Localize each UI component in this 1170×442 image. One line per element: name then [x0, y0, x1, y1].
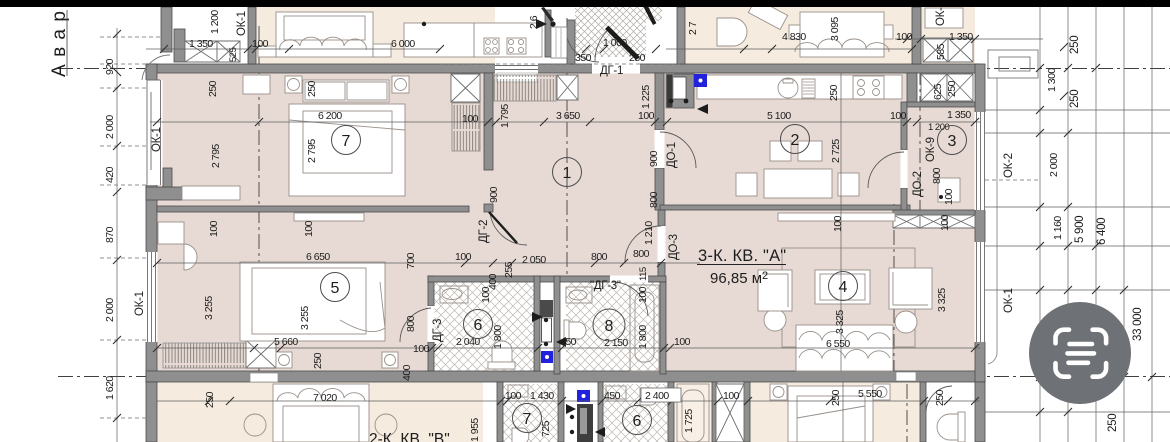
svg-text:800: 800	[648, 191, 660, 208]
svg-text:250: 250	[207, 80, 219, 97]
svg-text:1: 1	[563, 165, 572, 182]
svg-text:3 255: 3 255	[203, 296, 215, 320]
svg-text:1 160: 1 160	[1052, 216, 1064, 240]
svg-text:100: 100	[208, 220, 220, 237]
svg-text:800: 800	[591, 251, 608, 263]
svg-text:625: 625	[932, 83, 944, 100]
svg-text:1 725: 1 725	[683, 409, 695, 433]
svg-text:250: 250	[306, 80, 318, 97]
svg-text:5 660: 5 660	[274, 336, 298, 348]
svg-text:ДО-1: ДО-1	[666, 142, 678, 168]
svg-text:1 000: 1 000	[603, 37, 627, 49]
svg-text:100: 100	[252, 38, 269, 50]
svg-text:250: 250	[1069, 36, 1081, 54]
svg-text:3 325: 3 325	[834, 310, 846, 334]
svg-text:100: 100	[674, 336, 691, 348]
svg-text:255: 255	[503, 261, 515, 278]
svg-text:6 200: 6 200	[318, 110, 342, 122]
svg-text:2 050: 2 050	[522, 254, 546, 266]
svg-text:900: 900	[648, 150, 660, 167]
svg-text:2: 2	[791, 132, 800, 149]
svg-text:1 955: 1 955	[469, 418, 481, 442]
svg-text:800: 800	[405, 315, 417, 332]
svg-text:450: 450	[604, 390, 621, 402]
svg-text:6 000: 6 000	[391, 38, 415, 50]
svg-text:6 650: 6 650	[306, 251, 330, 263]
svg-text:2 000: 2 000	[104, 115, 116, 139]
svg-text:3 325: 3 325	[936, 288, 948, 312]
svg-text:ОК-1: ОК-1	[1003, 288, 1015, 313]
svg-text:1 795: 1 795	[499, 104, 511, 128]
svg-text:ОК-1: ОК-1	[236, 11, 248, 36]
svg-text:250: 250	[629, 52, 646, 64]
svg-text:585: 585	[935, 43, 947, 60]
svg-text:6 400: 6 400	[1096, 218, 1108, 245]
svg-text:100: 100	[723, 390, 740, 402]
svg-text:3-К. КВ. "А": 3-К. КВ. "А"	[698, 247, 786, 265]
svg-text:800: 800	[633, 248, 650, 260]
svg-text:1 210: 1 210	[643, 221, 655, 245]
svg-text:250: 250	[828, 84, 840, 101]
svg-text:100: 100	[896, 31, 913, 43]
svg-text:250: 250	[1107, 414, 1119, 432]
svg-text:4: 4	[839, 279, 848, 296]
svg-text:250: 250	[1069, 90, 1081, 108]
svg-text:870: 870	[104, 226, 116, 243]
svg-text:ОК-1: ОК-1	[134, 291, 146, 316]
svg-text:ДГ-3: ДГ-3	[432, 319, 444, 342]
svg-text:450: 450	[560, 336, 577, 348]
svg-text:2 725: 2 725	[830, 139, 842, 163]
svg-text:100: 100	[303, 220, 315, 237]
svg-text:ДО-3: ДО-3	[668, 234, 680, 260]
svg-text:100: 100	[943, 188, 955, 205]
svg-text:2 7: 2 7	[687, 21, 699, 35]
svg-text:115: 115	[638, 267, 649, 281]
svg-text:ДО-2: ДО-2	[912, 171, 924, 197]
svg-text:100: 100	[455, 251, 472, 263]
svg-text:5 900: 5 900	[1074, 216, 1086, 243]
svg-text:525: 525	[228, 47, 239, 62]
svg-text:800: 800	[931, 167, 943, 184]
svg-text:"ДГ-3": "ДГ-3"	[590, 280, 621, 292]
svg-text:1 300: 1 300	[1046, 68, 1058, 92]
svg-text:33 000: 33 000	[1132, 308, 1144, 341]
svg-text:100: 100	[505, 390, 522, 402]
svg-text:2 795: 2 795	[210, 144, 222, 168]
svg-text:1 350: 1 350	[947, 109, 971, 121]
svg-text:2 6: 2 6	[528, 15, 540, 29]
svg-text:250: 250	[934, 389, 946, 406]
svg-text:4 830: 4 830	[782, 31, 806, 43]
svg-text:7 020: 7 020	[313, 392, 337, 404]
svg-text:2-К. КВ. "В": 2-К. КВ. "В"	[369, 431, 450, 442]
svg-text:250: 250	[830, 389, 842, 406]
svg-text:6: 6	[474, 317, 483, 334]
svg-text:2 000: 2 000	[1048, 153, 1060, 177]
svg-text:ДГ-2: ДГ-2	[478, 220, 490, 243]
svg-text:ОК-9: ОК-9	[925, 137, 937, 162]
svg-text:3 255: 3 255	[299, 306, 311, 330]
svg-text:100: 100	[638, 110, 655, 122]
svg-text:7: 7	[342, 133, 351, 150]
svg-text:1 350: 1 350	[189, 38, 213, 50]
svg-text:250: 250	[946, 80, 958, 97]
svg-text:700: 700	[405, 252, 417, 269]
svg-text:1 225: 1 225	[640, 85, 652, 109]
svg-text:3: 3	[948, 133, 957, 150]
svg-text:5: 5	[331, 280, 340, 297]
svg-text:ДГ-1: ДГ-1	[600, 65, 623, 77]
svg-text:1 430: 1 430	[530, 390, 554, 402]
svg-text:100: 100	[890, 110, 907, 122]
svg-text:400: 400	[401, 364, 413, 381]
svg-text:1 350: 1 350	[949, 31, 973, 43]
svg-text:100: 100	[480, 286, 492, 303]
svg-text:2 795: 2 795	[306, 139, 318, 163]
svg-text:2 400: 2 400	[645, 390, 669, 402]
svg-text:1 800: 1 800	[492, 325, 504, 349]
svg-text:920: 920	[104, 58, 116, 75]
svg-text:1 800: 1 800	[637, 325, 649, 349]
svg-text:5 100: 5 100	[767, 110, 791, 122]
svg-text:350: 350	[575, 52, 592, 64]
svg-text:3 650: 3 650	[556, 110, 580, 122]
svg-text:96,85 м2: 96,85 м2	[710, 270, 768, 287]
svg-text:5 550: 5 550	[858, 388, 882, 400]
svg-text:100: 100	[832, 215, 844, 232]
svg-text:2 040: 2 040	[456, 336, 480, 348]
svg-text:8: 8	[605, 318, 614, 335]
svg-text:900: 900	[488, 186, 500, 203]
svg-text:ОК-1: ОК-1	[151, 127, 163, 152]
svg-text:100: 100	[413, 343, 430, 355]
svg-text:1 200: 1 200	[209, 10, 221, 34]
svg-text:250: 250	[312, 352, 324, 369]
svg-text:3 095: 3 095	[829, 17, 841, 41]
svg-text:100: 100	[462, 113, 479, 125]
svg-text:ОК-2: ОК-2	[1003, 153, 1015, 178]
svg-text:420: 420	[104, 166, 116, 183]
svg-text:2 000: 2 000	[104, 298, 116, 322]
svg-text:7: 7	[523, 411, 532, 428]
svg-text:100: 100	[939, 214, 951, 231]
svg-text:250: 250	[204, 391, 216, 408]
svg-text:100: 100	[637, 286, 649, 303]
svg-text:6 550: 6 550	[826, 338, 850, 350]
svg-text:6: 6	[633, 413, 642, 430]
svg-text:1 200: 1 200	[928, 122, 949, 133]
svg-text:725: 725	[540, 420, 552, 437]
svg-text:1 620: 1 620	[104, 376, 116, 400]
